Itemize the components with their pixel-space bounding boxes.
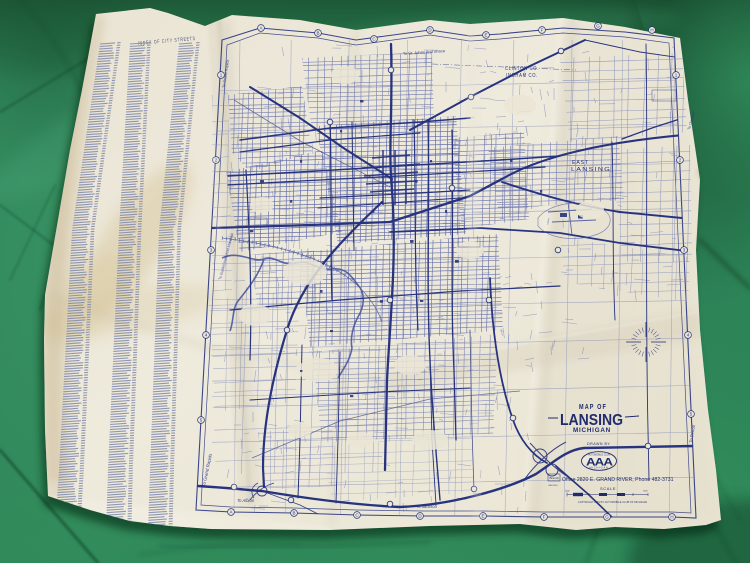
- svg-text:H: H: [670, 515, 673, 520]
- svg-text:EAST: EAST: [572, 160, 589, 166]
- svg-text:MAP OF: MAP OF: [579, 402, 607, 411]
- svg-text:LANSING: LANSING: [571, 167, 611, 173]
- svg-text:DRAWN BY: DRAWN BY: [587, 442, 610, 446]
- svg-text:MICHIGAN: MICHIGAN: [589, 466, 608, 470]
- svg-text:G: G: [596, 24, 600, 29]
- svg-text:F: F: [541, 28, 544, 33]
- svg-text:AUTOMOBILE CLUB: AUTOMOBILE CLUB: [588, 454, 610, 457]
- svg-text:E: E: [484, 33, 487, 38]
- svg-text:A: A: [229, 510, 232, 515]
- svg-text:INGHAM CO.: INGHAM CO.: [506, 73, 538, 79]
- svg-text:Branch: Branch: [550, 476, 560, 480]
- svg-text:To Albion: To Albion: [237, 498, 255, 503]
- svg-text:CLINTON CO.: CLINTON CO.: [505, 66, 539, 72]
- svg-text:G: G: [605, 515, 609, 520]
- svg-text:F: F: [543, 515, 546, 520]
- svg-text:H: H: [650, 28, 653, 33]
- svg-text:B: B: [316, 31, 319, 36]
- svg-text:SCALE: SCALE: [600, 486, 616, 491]
- svg-text:LANSING: LANSING: [548, 484, 558, 487]
- svg-text:MICHIGAN: MICHIGAN: [573, 427, 611, 434]
- svg-text:B: B: [292, 511, 295, 516]
- svg-text:A: A: [259, 26, 262, 31]
- svg-text:Office 2820 E. GRAND RIVER, Ph: Office 2820 E. GRAND RIVER, Phone 482-37…: [562, 477, 674, 483]
- svg-text:COPYRIGHT 1951 BY AUTOMOBILE C: COPYRIGHT 1951 BY AUTOMOBILE CLUB OF MIC…: [578, 500, 647, 504]
- svg-text:To Jackson: To Jackson: [416, 504, 438, 509]
